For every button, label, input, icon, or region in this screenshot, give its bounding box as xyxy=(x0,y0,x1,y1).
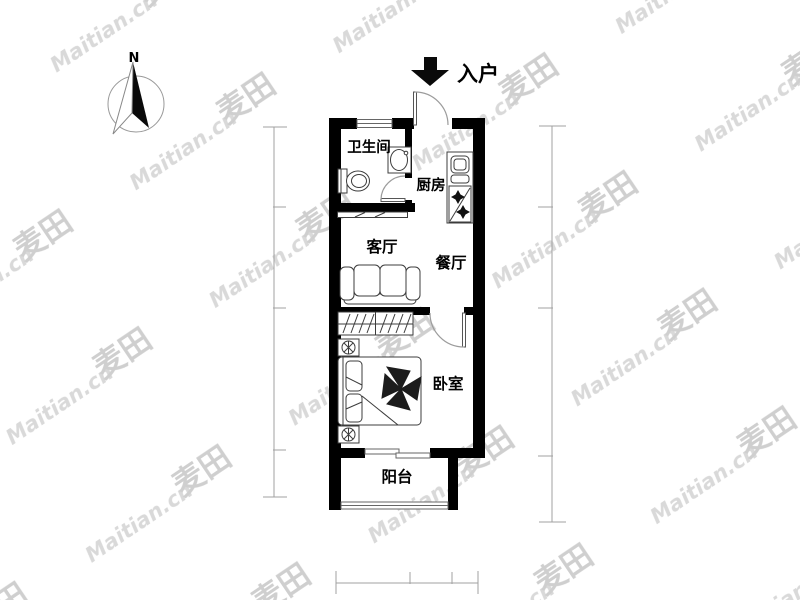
stove-icon xyxy=(449,186,471,222)
kitchen-label: 厨房 xyxy=(417,176,446,194)
floor-plan-page: Maitian.cn 麦田 N 入户 xyxy=(0,0,800,600)
dining-room-label: 餐厅 xyxy=(434,253,467,272)
bathroom-label: 卫生间 xyxy=(347,138,391,156)
sofa-icon xyxy=(340,265,420,304)
washbasin-icon xyxy=(388,147,411,173)
bathroom-window xyxy=(357,120,392,128)
toilet-icon xyxy=(338,169,370,193)
wall-balcony-corner-left xyxy=(329,500,341,510)
bed-icon xyxy=(338,357,421,425)
wardrobe-icon xyxy=(338,312,413,335)
wall-bedroom-south-left xyxy=(329,448,365,458)
floor-plan-canvas: Maitian.cn 麦田 N 入户 xyxy=(0,0,800,600)
wall-top-a xyxy=(329,118,357,129)
wall-bathroom-south xyxy=(341,203,415,212)
balcony-label: 阳台 xyxy=(381,467,412,486)
wall-top-b xyxy=(392,118,414,129)
nightstand-top xyxy=(338,339,359,356)
wall-balcony-right xyxy=(448,458,458,510)
kitchen-sink-icon xyxy=(451,156,469,183)
wall-bedroom-south-right xyxy=(430,448,485,458)
entrance-label: 入户 xyxy=(457,62,499,86)
living-room-label: 客厅 xyxy=(366,237,398,256)
entry-arrow-shaft xyxy=(424,57,437,71)
balcony-window xyxy=(341,502,448,509)
tv-bench xyxy=(338,212,408,218)
kitchen-fixtures xyxy=(447,152,473,223)
bedroom-furniture xyxy=(338,312,421,443)
nightstand-bottom xyxy=(338,426,359,443)
bedroom-label: 卧室 xyxy=(432,374,463,393)
wall-right xyxy=(473,118,485,458)
compass-north-label: N xyxy=(129,51,140,66)
